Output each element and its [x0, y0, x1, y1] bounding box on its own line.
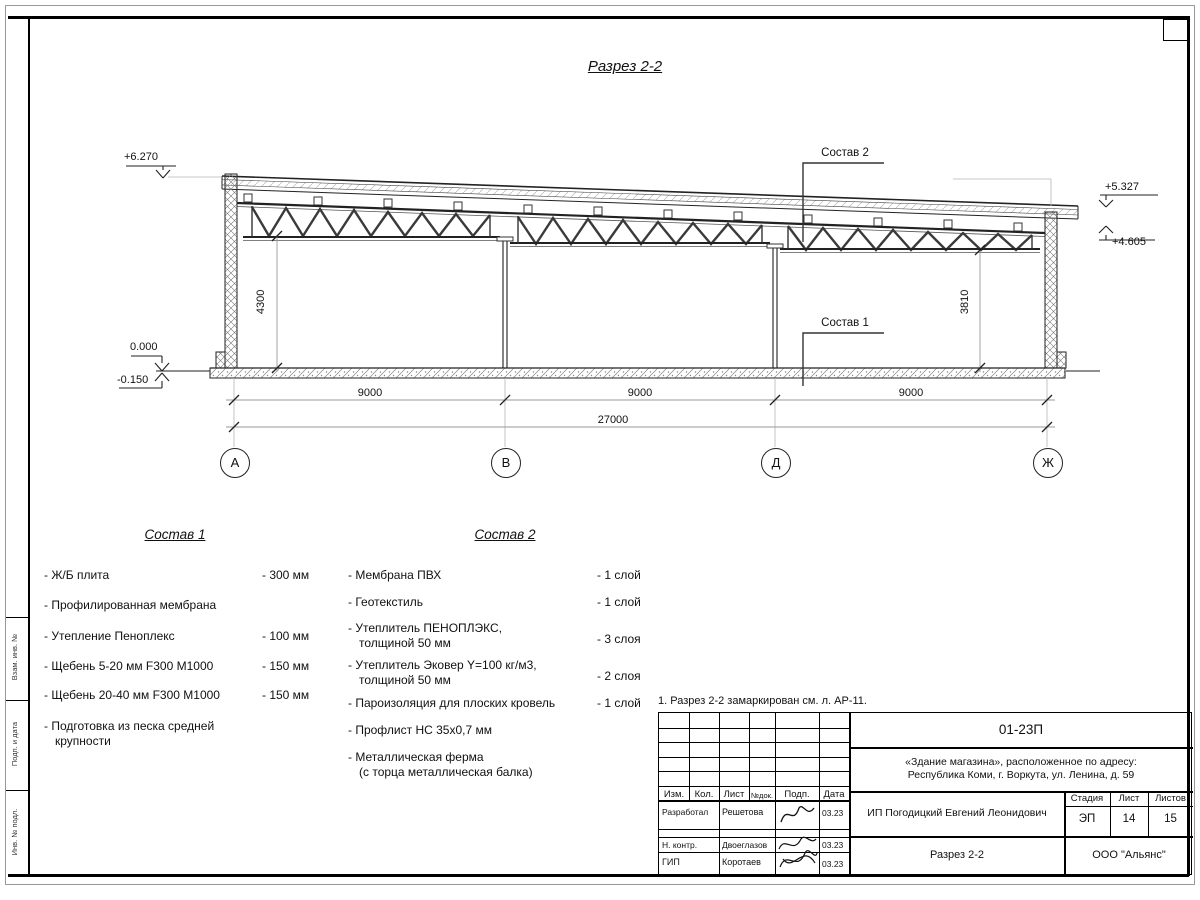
tb-stage-value: ЭП [1064, 813, 1110, 827]
dim-total: 27000 [578, 414, 648, 428]
dim-height-left: 4300 [255, 282, 269, 322]
composition2-item-value: - 1 слой [597, 595, 667, 610]
columns [497, 237, 783, 368]
composition2-item-name: - Утеплитель ПЕНОПЛЭКС, толщиной 50 мм [348, 621, 609, 651]
tb-signer-name: Двоеглазов [722, 840, 776, 850]
tb-col-kol: Кол. [689, 789, 719, 800]
composition2-item-value: - 1 слой [597, 696, 667, 711]
tb-drawing-name: Разрез 2-2 [851, 849, 1063, 862]
composition1-heading: Состав 1 [120, 527, 230, 544]
composition1-item-name: - Подготовка из песка средней крупности [44, 719, 255, 749]
composition2-item-name: - Геотекстиль [348, 595, 609, 610]
grid-axis-b: В [491, 448, 521, 478]
tb-signer-date: 03.23 [822, 808, 848, 818]
tb-signer-date: 03.23 [822, 859, 848, 869]
tb-project-address: «Здание магазина», расположенное по адре… [855, 756, 1187, 782]
drawing-sheet: Взам. инв. № Подп. и дата Инв. № подл. Р… [0, 0, 1200, 900]
composition1-item-value: - 150 мм [262, 659, 332, 674]
dim-span-1: 9000 [340, 387, 400, 401]
composition1-item-name: - Щебень 5-20 мм F300 М1000 [44, 659, 271, 674]
side-stamp-divider-3 [6, 790, 28, 791]
composition2-item-name: - Утеплитель Эковер Y=100 кг/м3, толщино… [348, 658, 619, 688]
section-linework [0, 0, 1200, 520]
tb-sheets-total: 15 [1148, 813, 1193, 827]
tb-stage-label: Стадия [1064, 793, 1110, 804]
floor-slab [156, 368, 1100, 378]
tb-signer-date: 03.23 [822, 840, 848, 850]
tb-col-list: Лист [719, 789, 749, 800]
callout-sostav-2: Состав 2 [805, 146, 885, 160]
composition2-item-name: - Профлист НС 35х0,7 мм [348, 723, 609, 738]
dim-span-3: 9000 [881, 387, 941, 401]
grid-axis-zh: Ж [1033, 448, 1063, 478]
tb-signer-role: ГИП [662, 857, 718, 868]
tb-col-data: Дата [819, 789, 849, 800]
side-stamp-label-podp: Подп. и дата [10, 704, 22, 784]
signature-2 [775, 833, 819, 875]
signature-1 [777, 802, 817, 828]
elevation-top-left: +6.270 [124, 151, 158, 165]
tb-sheet-number: 14 [1110, 813, 1148, 827]
elevation-right-lower: +4.605 [1112, 236, 1146, 250]
tb-signer-name: Коротаев [722, 857, 776, 868]
tb-company: ООО "Альянс" [1065, 849, 1193, 862]
elevation-below-zero: -0.150 [117, 374, 148, 388]
tb-client: ИП Погодицкий Евгений Леонидович [851, 807, 1063, 820]
callout-sostav-1: Состав 1 [805, 316, 885, 330]
tb-sheet-label: Лист [1110, 793, 1148, 804]
tb-signer-role: Разработал [662, 807, 718, 817]
composition1-item-value: - 150 мм [262, 688, 332, 703]
tb-signer-name: Решетова [722, 807, 774, 818]
composition1-item-value: - 100 мм [262, 629, 332, 644]
composition2-item-name: - Мембрана ПВХ [348, 568, 609, 583]
composition2-item-value: - 2 слоя [597, 669, 667, 684]
dimension-lines [226, 231, 1055, 432]
title-block: Изм. Кол. Лист №док. Подп. Дата Разработ… [658, 712, 1192, 875]
composition1-item-name: - Профилированная мембрана [44, 598, 271, 613]
roof-package [222, 176, 1078, 219]
side-stamp-label-inv: Инв. № подл. [10, 792, 22, 872]
composition2-item-name: - Металлическая ферма (с торца металличе… [348, 750, 609, 780]
composition2-heading: Состав 2 [450, 527, 560, 544]
composition1-item-name: - Ж/Б плита [44, 568, 271, 583]
composition1-item-value: - 300 мм [262, 568, 332, 583]
dim-height-right: 3810 [959, 282, 973, 322]
composition2-item-value: - 3 слоя [597, 632, 667, 647]
elevation-right-upper: +5.327 [1105, 181, 1139, 195]
tb-col-podp: Подп. [775, 789, 819, 800]
elevation-zero: 0.000 [130, 341, 158, 355]
composition1-item-name: - Утепление Пеноплекс [44, 629, 271, 644]
grid-axis-d: Д [761, 448, 791, 478]
grid-axis-a: А [220, 448, 250, 478]
side-stamp-label-vzam: Взам. инв. № [10, 617, 22, 697]
tb-col-izm: Изм. [659, 789, 689, 800]
composition1-item-name: - Щебень 20-40 мм F300 М1000 [44, 688, 271, 703]
walls [216, 174, 1066, 368]
tb-signer-role: Н. контр. [662, 840, 718, 850]
tb-sheets-label: Листов [1148, 793, 1193, 804]
truss [237, 203, 1045, 253]
tb-doc-number: 01-23П [849, 722, 1193, 738]
sheet-note: 1. Разрез 2-2 замаркирован см. л. АР-11. [658, 695, 958, 709]
composition2-item-value: - 1 слой [597, 568, 667, 583]
composition2-item-name: - Пароизоляция для плоских кровель [348, 696, 609, 711]
dim-span-2: 9000 [610, 387, 670, 401]
tb-col-ndok: №док. [749, 791, 775, 800]
side-stamp-divider-2 [6, 700, 28, 701]
